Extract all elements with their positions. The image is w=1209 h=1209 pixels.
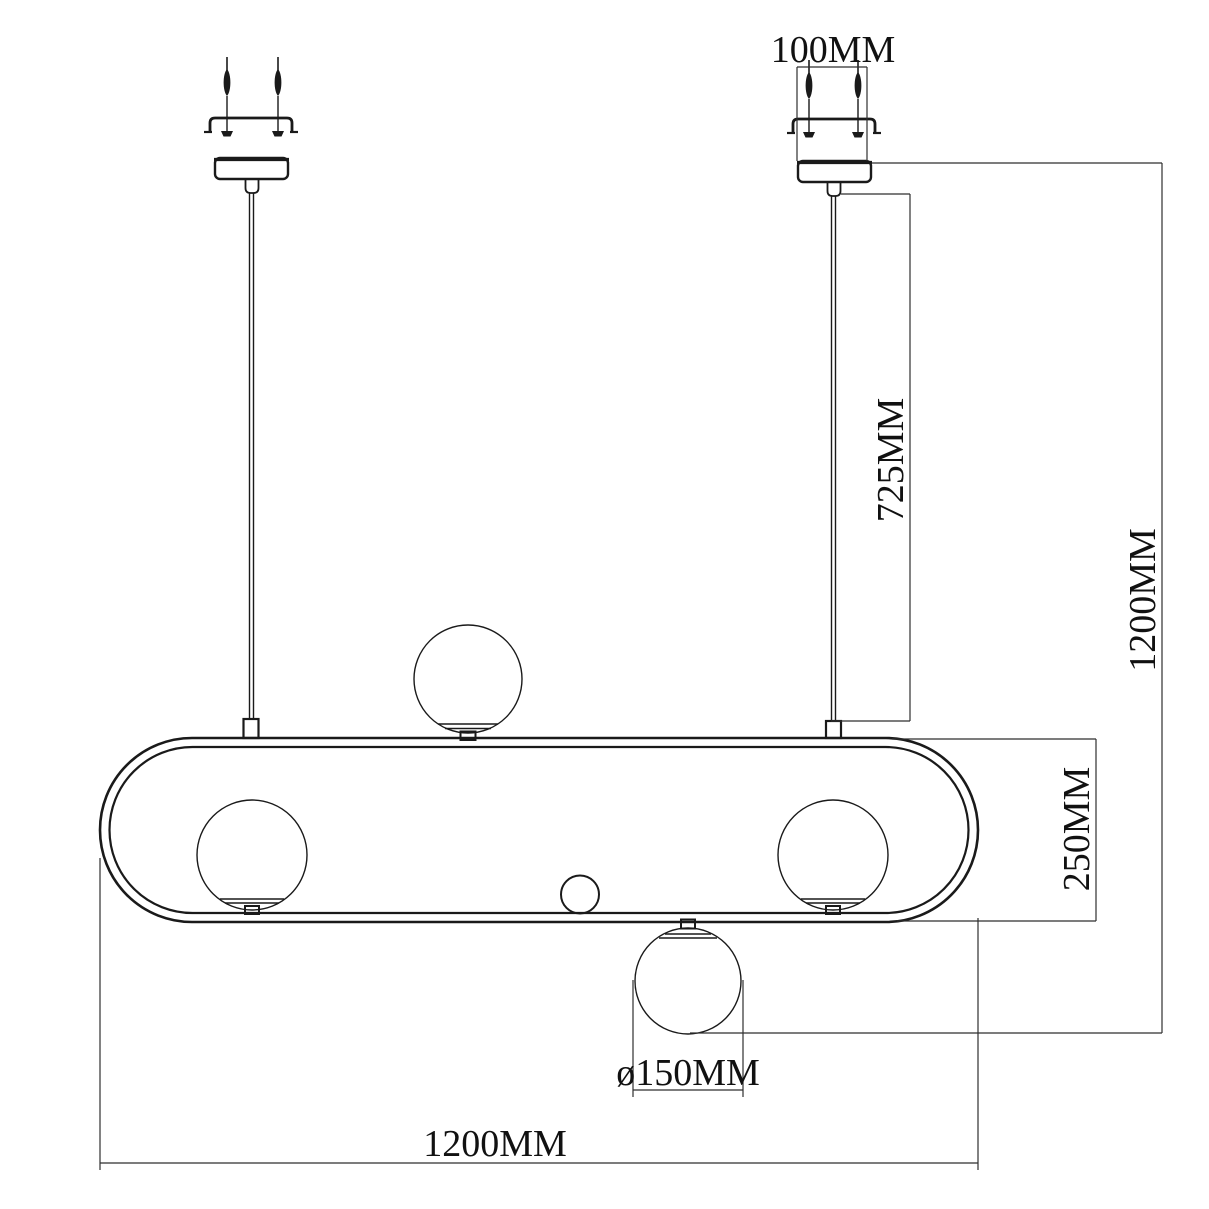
canopy-connector	[246, 179, 259, 193]
frame-outer-rail	[100, 738, 978, 922]
mounting-bracket	[210, 118, 292, 132]
ceiling-canopy	[798, 161, 871, 182]
screw-anchor-icon	[221, 57, 233, 137]
right-suspension-rod	[826, 196, 841, 738]
dim-label-overall-width: 1200MM	[423, 1123, 567, 1165]
dim-250mm-frame: 250MM	[892, 739, 1098, 921]
mounting-bracket	[793, 119, 875, 133]
dim-label-frame-height: 250MM	[1056, 767, 1098, 892]
rod-frame-connector	[826, 721, 841, 738]
screw-anchor-icon	[272, 57, 284, 137]
dim-label-overall-height: 1200MM	[1122, 528, 1164, 672]
screw-anchor-icon	[852, 60, 864, 138]
dim-label-canopy-width: 100MM	[771, 29, 896, 71]
dim-725mm-rod: 725MM	[831, 194, 912, 721]
screw-anchor-icon	[803, 60, 815, 138]
stadium-frame	[100, 738, 978, 922]
ceiling-canopy	[215, 158, 288, 179]
dim-1200mm-width: 1200MM	[100, 858, 978, 1170]
technical-drawing-pendant-lamp: 100MM 725MM 1200MM 250MM ø150MM 1200MM	[0, 0, 1209, 1209]
dim-100mm-canopy: 100MM	[771, 29, 896, 161]
canopy-connector	[828, 182, 841, 196]
drawing-canvas: 100MM 725MM 1200MM 250MM ø150MM 1200MM	[0, 0, 1209, 1209]
globe-right	[778, 800, 888, 914]
globe-bottom	[635, 920, 741, 1035]
dim-label-rod-length: 725MM	[870, 398, 912, 523]
small-decor-sphere	[561, 876, 599, 914]
left-ceiling-mount	[204, 57, 298, 193]
dim-label-globe-diameter: ø150MM	[616, 1052, 760, 1094]
globe-top	[414, 625, 522, 740]
rod-frame-connector	[244, 719, 259, 738]
globe-left	[197, 800, 307, 914]
left-suspension-rod	[244, 193, 259, 738]
frame-inner-rail	[110, 747, 969, 913]
